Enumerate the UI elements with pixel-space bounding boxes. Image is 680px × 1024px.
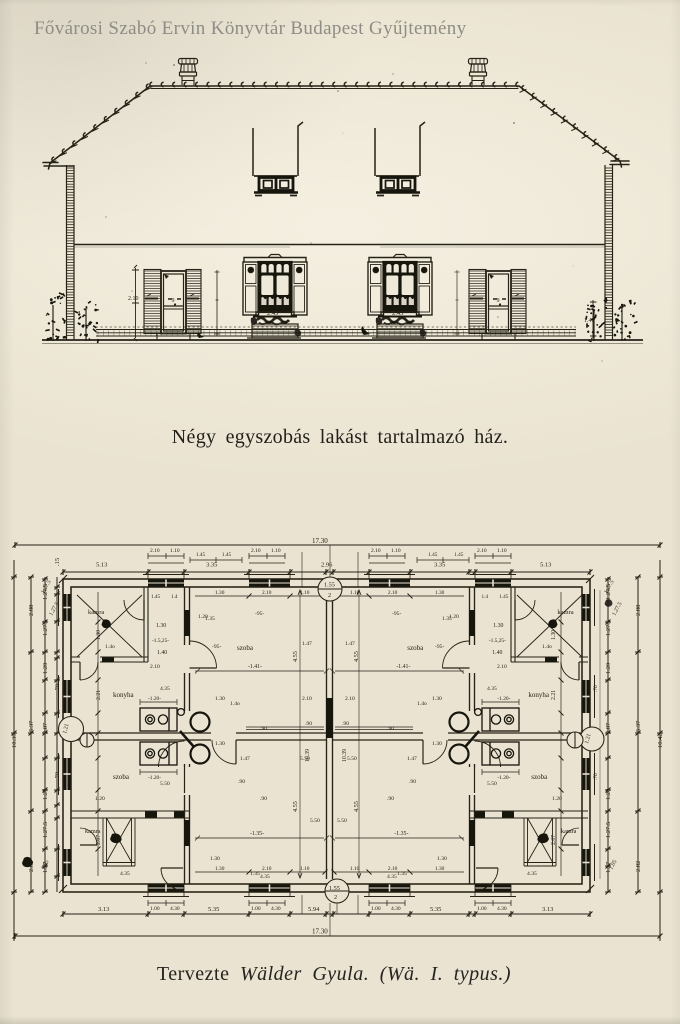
svg-text:1.27.5: 1.27.5 — [42, 822, 49, 838]
svg-text:.90: .90 — [305, 721, 312, 727]
svg-text:1.30: 1.30 — [435, 590, 445, 596]
svg-text:1.40: 1.40 — [157, 650, 167, 656]
svg-text:1.00: 1.00 — [477, 906, 487, 912]
svg-text:2.10: 2.10 — [302, 696, 312, 702]
svg-text:2.96: 2.96 — [321, 562, 333, 569]
svg-text:-95-: -95- — [392, 611, 401, 617]
svg-text:1.10: 1.10 — [300, 866, 310, 872]
svg-text:1.00: 1.00 — [150, 906, 160, 912]
svg-text:2.07: 2.07 — [551, 835, 557, 845]
svg-text:1.30: 1.30 — [215, 866, 225, 872]
svg-text:-1.35-: -1.35- — [250, 831, 264, 837]
svg-text:1.30: 1.30 — [432, 741, 442, 747]
svg-text:3.35: 3.35 — [434, 562, 445, 569]
svg-text:1.30: 1.30 — [96, 630, 102, 640]
svg-text:1.30: 1.30 — [215, 590, 225, 596]
svg-text:1.10: 1.10 — [350, 590, 360, 596]
svg-text:-95-: -95- — [212, 644, 221, 650]
svg-text:17.30: 17.30 — [312, 928, 328, 936]
svg-text:1.20: 1.20 — [95, 796, 105, 802]
svg-text:1.10: 1.10 — [391, 548, 401, 554]
svg-text:1.30: 1.30 — [215, 741, 225, 747]
svg-text:1.45: 1.45 — [454, 552, 463, 558]
svg-text:1.35: 1.35 — [250, 871, 260, 877]
svg-text:1.20: 1.20 — [605, 663, 612, 674]
svg-text:5.13: 5.13 — [96, 562, 107, 569]
svg-text:1.20: 1.20 — [42, 789, 49, 800]
svg-text:1.4: 1.4 — [171, 594, 178, 600]
svg-text:4.35: 4.35 — [120, 871, 130, 877]
svg-text:1.35: 1.35 — [397, 871, 407, 877]
svg-text:1.47: 1.47 — [302, 641, 312, 647]
svg-text:2.10: 2.10 — [262, 590, 272, 596]
svg-text:1.30: 1.30 — [432, 696, 442, 702]
svg-text:1.05: 1.05 — [608, 859, 618, 871]
svg-text:.90: .90 — [409, 779, 416, 785]
svg-text:kamra: kamra — [85, 828, 101, 835]
svg-text:-1.35-: -1.35- — [394, 831, 408, 837]
svg-text:1.30: 1.30 — [435, 866, 445, 872]
svg-text:1.55: 1.55 — [324, 582, 335, 589]
svg-text:4.55: 4.55 — [353, 651, 360, 662]
svg-text:1.45: 1.45 — [499, 594, 508, 600]
svg-text:4.30: 4.30 — [497, 906, 507, 912]
svg-text:2.82: 2.82 — [635, 861, 642, 872]
svg-text:2.07: 2.07 — [96, 835, 102, 845]
svg-text:-1.20-: -1.20- — [497, 775, 510, 781]
svg-text:4.30: 4.30 — [170, 906, 180, 912]
svg-text:2.21: 2.21 — [96, 690, 102, 700]
svg-text:4.35: 4.35 — [387, 874, 397, 880]
svg-text:4.35: 4.35 — [487, 686, 497, 692]
svg-text:-1.20-: -1.20- — [497, 696, 510, 702]
svg-text:1.27.5: 1.27.5 — [611, 601, 623, 617]
svg-text:2.87: 2.87 — [605, 722, 612, 734]
svg-text:1.10: 1.10 — [497, 548, 507, 554]
svg-text:1.27.5: 1.27.5 — [42, 620, 49, 636]
svg-text:9: 9 — [497, 298, 500, 304]
svg-text:1.30: 1.30 — [437, 856, 447, 862]
svg-text:1.30: 1.30 — [551, 630, 557, 640]
svg-text:5.50: 5.50 — [160, 781, 170, 787]
svg-text:2.21: 2.21 — [551, 690, 557, 700]
svg-text:1.4o: 1.4o — [542, 644, 552, 650]
svg-text:5.35: 5.35 — [208, 906, 219, 913]
svg-text:10.42: 10.42 — [657, 733, 664, 748]
svg-text:1.27.5: 1.27.5 — [40, 579, 52, 595]
svg-text:4.55: 4.55 — [353, 801, 360, 812]
svg-text:1.55: 1.55 — [329, 885, 340, 892]
svg-text:5.35: 5.35 — [430, 906, 441, 913]
svg-text:1.20: 1.20 — [198, 614, 208, 620]
svg-text:konyha: konyha — [528, 691, 550, 699]
svg-text:4.35: 4.35 — [160, 686, 170, 692]
svg-text:szoba: szoba — [237, 644, 254, 652]
svg-text:-1.5,25-: -1.5,25- — [489, 638, 506, 644]
svg-text:1.30: 1.30 — [215, 696, 225, 702]
svg-text:konyha: konyha — [113, 691, 135, 699]
svg-text:5.50: 5.50 — [310, 818, 320, 824]
svg-text:2.45: 2.45 — [392, 310, 403, 317]
svg-text:4.55: 4.55 — [292, 651, 299, 662]
svg-text:2.10: 2.10 — [371, 548, 381, 554]
svg-text:2.10: 2.10 — [150, 664, 160, 670]
svg-text:5.50: 5.50 — [347, 756, 357, 762]
svg-text:3.13: 3.13 — [98, 906, 109, 913]
svg-text:.90: .90 — [238, 779, 245, 785]
svg-text:1.27.5: 1.27.5 — [605, 822, 612, 838]
svg-text:kamra: kamra — [561, 828, 577, 835]
svg-text:1.45: 1.45 — [222, 552, 231, 558]
svg-text:-1.5,25-: -1.5,25- — [152, 638, 169, 644]
svg-text:.90: .90 — [387, 726, 394, 732]
svg-text:2.10: 2.10 — [345, 696, 355, 702]
svg-text:-1.20-: -1.20- — [148, 696, 161, 702]
svg-text:3.13: 3.13 — [542, 906, 553, 913]
svg-text:1.4: 1.4 — [481, 594, 488, 600]
svg-text:2.10: 2.10 — [388, 590, 398, 596]
svg-text:1.30: 1.30 — [156, 623, 166, 629]
svg-text:-95-: -95- — [435, 644, 444, 650]
svg-text:1.47: 1.47 — [240, 756, 250, 762]
svg-text:.90: .90 — [260, 796, 267, 802]
svg-text:1.20: 1.20 — [552, 796, 562, 802]
svg-text:.90: .90 — [260, 726, 267, 732]
svg-text:4.30: 4.30 — [271, 906, 281, 912]
svg-text:kamra: kamra — [88, 609, 104, 616]
svg-text:1.10: 1.10 — [300, 590, 310, 596]
svg-text:5.37: 5.37 — [28, 720, 35, 732]
svg-text:1.4o: 1.4o — [230, 701, 240, 707]
svg-text:1.4o: 1.4o — [417, 701, 427, 707]
svg-text:kamra: kamra — [557, 609, 573, 616]
svg-text:1.4o: 1.4o — [105, 644, 115, 650]
svg-text:1.30: 1.30 — [493, 623, 503, 629]
svg-text:1.05: 1.05 — [40, 859, 50, 871]
svg-text:2: 2 — [334, 894, 337, 901]
svg-text:2: 2 — [328, 592, 331, 599]
svg-text:-1.41-: -1.41- — [248, 664, 262, 670]
svg-text:.70: .70 — [54, 684, 61, 692]
svg-text:2.10: 2.10 — [477, 548, 487, 554]
svg-text:5.13: 5.13 — [540, 562, 551, 569]
svg-text:1.10: 1.10 — [271, 548, 281, 554]
svg-text:2.88: 2.88 — [635, 605, 642, 616]
svg-text:.90: .90 — [387, 796, 394, 802]
svg-text:1.00: 1.00 — [251, 906, 261, 912]
svg-text:1.45: 1.45 — [428, 552, 437, 558]
svg-text:1.00: 1.00 — [371, 906, 381, 912]
svg-text:.90: .90 — [342, 721, 349, 727]
svg-text:4.30: 4.30 — [391, 906, 401, 912]
svg-text:17.30: 17.30 — [312, 537, 328, 545]
svg-text:.15: .15 — [54, 558, 61, 566]
svg-text:5.94: 5.94 — [308, 906, 320, 913]
svg-text:4.55: 4.55 — [292, 801, 299, 812]
svg-text:1.47: 1.47 — [407, 756, 417, 762]
svg-text:10.39: 10.39 — [11, 733, 18, 748]
svg-text:1.45: 1.45 — [196, 552, 205, 558]
svg-text:1.40: 1.40 — [492, 650, 502, 656]
svg-text:2.10: 2.10 — [262, 866, 272, 872]
svg-text:1.10: 1.10 — [350, 866, 360, 872]
svg-text:4.35: 4.35 — [260, 874, 270, 880]
svg-text:-95-: -95- — [255, 611, 264, 617]
svg-text:szoba: szoba — [113, 773, 130, 781]
svg-text:1.20: 1.20 — [449, 614, 459, 620]
svg-text:2.45: 2.45 — [267, 310, 278, 317]
svg-text:4.35: 4.35 — [527, 871, 537, 877]
svg-text:5.50: 5.50 — [300, 756, 310, 762]
svg-text:2.87: 2.87 — [42, 722, 49, 734]
svg-text:2.10: 2.10 — [251, 548, 261, 554]
svg-text:2.10: 2.10 — [497, 664, 507, 670]
svg-text:9: 9 — [172, 298, 175, 304]
svg-text:.70: .70 — [54, 772, 61, 780]
svg-text:1.20: 1.20 — [42, 663, 49, 674]
svg-text:.70: .70 — [593, 773, 599, 780]
svg-text:1.20: 1.20 — [605, 789, 612, 800]
svg-text:2.88: 2.88 — [28, 605, 35, 616]
svg-text:2.10: 2.10 — [150, 548, 160, 554]
svg-text:szoba: szoba — [531, 773, 548, 781]
svg-text:1.30: 1.30 — [210, 856, 220, 862]
svg-text:1.27.5: 1.27.5 — [603, 579, 615, 595]
svg-text:szoba: szoba — [407, 644, 424, 652]
svg-text:1.27.5: 1.27.5 — [605, 620, 612, 636]
svg-text:5.50: 5.50 — [337, 818, 347, 824]
svg-text:2.10: 2.10 — [128, 296, 139, 302]
svg-text:1.10: 1.10 — [170, 548, 180, 554]
svg-text:-1.41-: -1.41- — [396, 664, 410, 670]
svg-text:5.37: 5.37 — [635, 720, 642, 732]
svg-text:5.50: 5.50 — [487, 781, 497, 787]
svg-text:1.45: 1.45 — [151, 594, 160, 600]
svg-text:.70: .70 — [593, 685, 599, 692]
svg-text:1.47: 1.47 — [345, 641, 355, 647]
